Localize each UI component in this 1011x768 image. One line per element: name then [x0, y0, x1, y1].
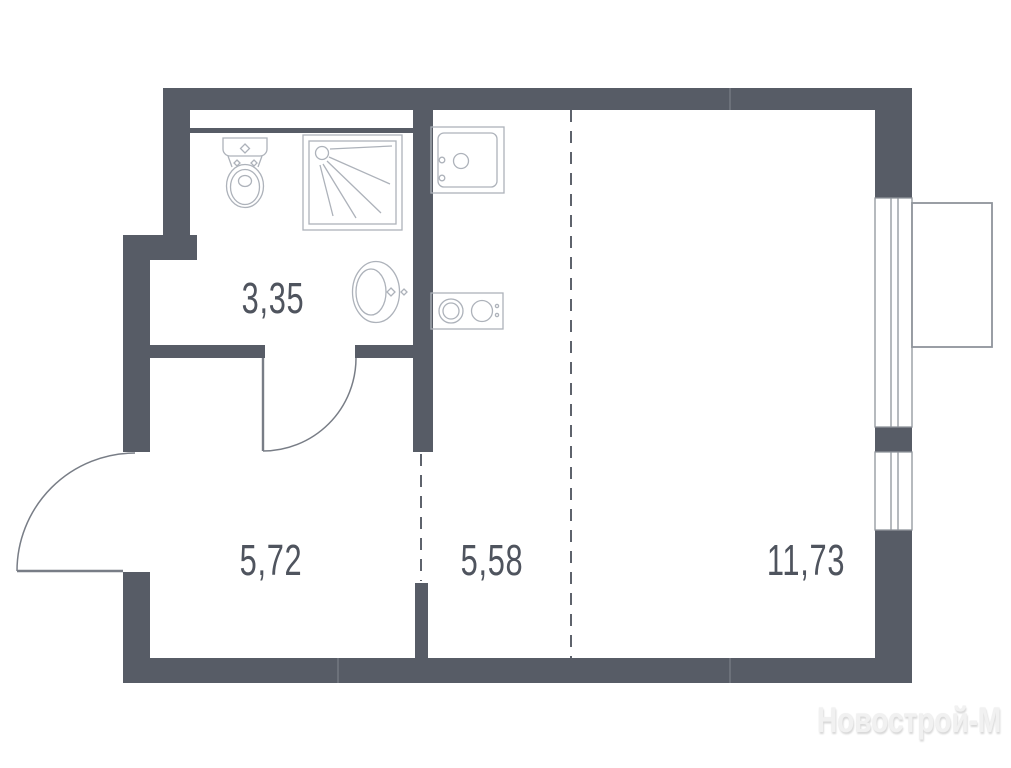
window-living-opening — [875, 198, 912, 427]
window-living-2-opening — [875, 452, 912, 530]
toilet-shoulders — [228, 156, 262, 167]
sink-cabinet — [431, 127, 504, 193]
wall-seams — [338, 88, 730, 683]
wall-right-upper — [875, 88, 912, 198]
sink-basin — [438, 133, 497, 187]
sink-tap-hot — [439, 157, 445, 163]
area-labels: 3,35 5,72 5,58 11,73 — [240, 275, 846, 586]
wall-divider-kitchen — [413, 110, 433, 452]
shower-icon — [303, 135, 402, 230]
floorplan-canvas: 3,35 5,72 5,58 11,73 Новострой-М — [0, 0, 1011, 768]
wall-right-pier — [875, 427, 912, 452]
bathroom-door-swing-arc — [263, 358, 356, 451]
wall-top — [163, 88, 912, 110]
washbasin-faucet — [387, 288, 395, 296]
entrance-door-swing-arc — [17, 453, 135, 571]
toilet-bolt-right — [251, 160, 257, 166]
wall-bathroom-bottom-left — [150, 345, 265, 358]
window-living — [875, 198, 912, 427]
stove-knob-1 — [495, 304, 498, 307]
area-label-bathroom: 3,35 — [242, 275, 305, 324]
bathroom-door — [263, 358, 356, 451]
area-label-kitchen: 5,58 — [461, 537, 524, 586]
wall-stub-bottom — [415, 583, 428, 658]
sink-drain — [454, 154, 469, 169]
wall-left-upper — [163, 88, 190, 235]
wall-left-mid — [123, 260, 150, 452]
area-label-hallway: 5,72 — [240, 537, 303, 586]
washbasin-tap — [401, 289, 407, 295]
wall-right-lower — [875, 530, 912, 683]
shower-drain — [316, 147, 329, 160]
balcony-outline — [912, 203, 992, 347]
wall-left-step — [123, 235, 197, 260]
toilet-tank-valve — [241, 144, 250, 153]
toilet-icon — [223, 138, 267, 208]
doors — [17, 358, 356, 571]
wall-bottom — [123, 658, 912, 683]
floorplan-drawing: 3,35 5,72 5,58 11,73 — [0, 0, 1011, 768]
stove-knob-2 — [495, 313, 498, 316]
washbasin-icon — [353, 262, 408, 323]
washbasin-inner — [356, 269, 386, 315]
walls — [123, 88, 912, 683]
window-living-2 — [875, 452, 912, 530]
watermark: Новострой-М — [817, 701, 1001, 741]
toilet-drain — [239, 176, 252, 187]
shower-spray-rays — [320, 146, 392, 218]
stove-burner-left-inner — [443, 303, 459, 319]
sink-tap-cold — [439, 175, 445, 181]
kitchen-sink-icon — [431, 127, 504, 193]
stove-icon — [431, 293, 503, 329]
area-label-living: 11,73 — [767, 537, 845, 586]
stove-burner-right — [472, 301, 493, 322]
entrance-door — [17, 453, 135, 571]
windows — [875, 198, 992, 530]
wall-vent-niche-strip — [190, 128, 413, 133]
